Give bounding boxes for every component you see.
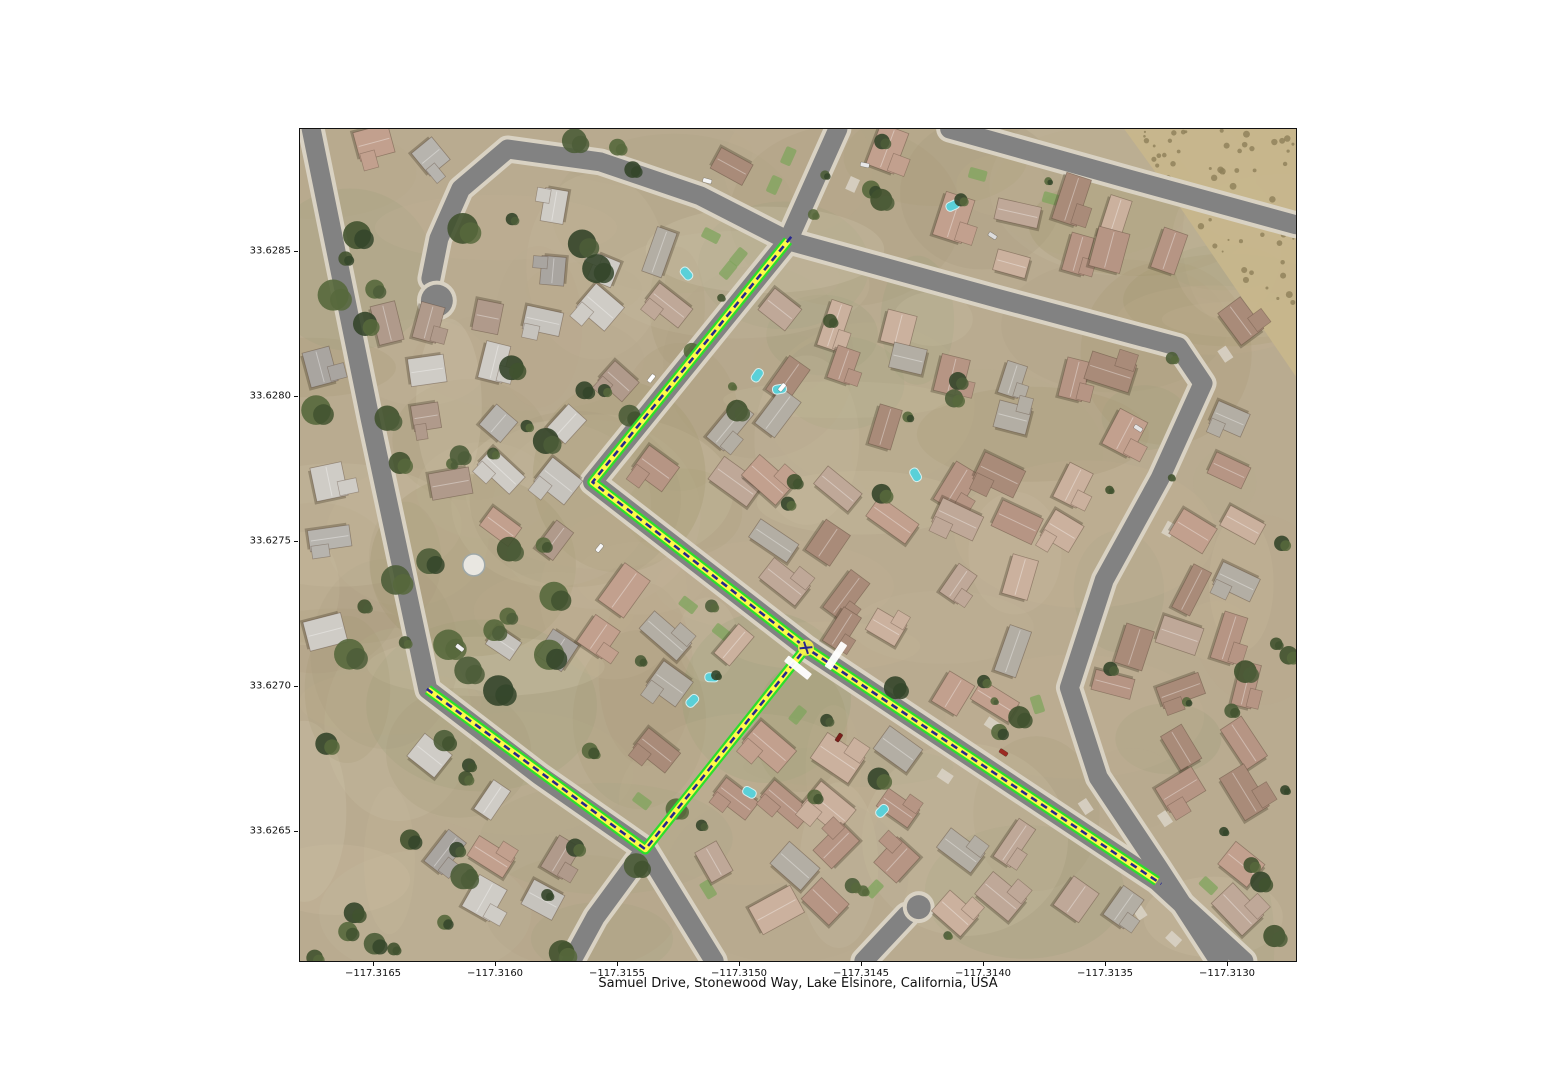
y-tick-label: 33.6275: [211, 536, 291, 547]
x-tick-mark: [617, 962, 618, 966]
x-tick-mark: [495, 962, 496, 966]
y-tick-mark: [294, 541, 298, 542]
x-tick-mark: [983, 962, 984, 966]
y-tick-mark: [294, 251, 298, 252]
y-tick-mark: [294, 686, 298, 687]
y-tick-label: 33.6285: [211, 246, 291, 257]
y-tick-label: 33.6265: [211, 826, 291, 837]
x-tick-mark: [1105, 962, 1106, 966]
y-tick-mark: [294, 831, 298, 832]
aerial-map: [300, 129, 1296, 961]
x-tick-mark: [739, 962, 740, 966]
map-plot-area: [299, 128, 1297, 962]
y-tick-label: 33.6270: [211, 681, 291, 692]
figure-title: Samuel Drive, Stonewood Way, Lake Elsino…: [299, 976, 1297, 991]
x-tick-mark: [1227, 962, 1228, 966]
x-tick-mark: [861, 962, 862, 966]
figure-canvas: −117.3165−117.3160−117.3155−117.3150−117…: [0, 0, 1556, 1080]
x-tick-mark: [373, 962, 374, 966]
y-tick-label: 33.6280: [211, 391, 291, 402]
y-tick-mark: [294, 396, 298, 397]
